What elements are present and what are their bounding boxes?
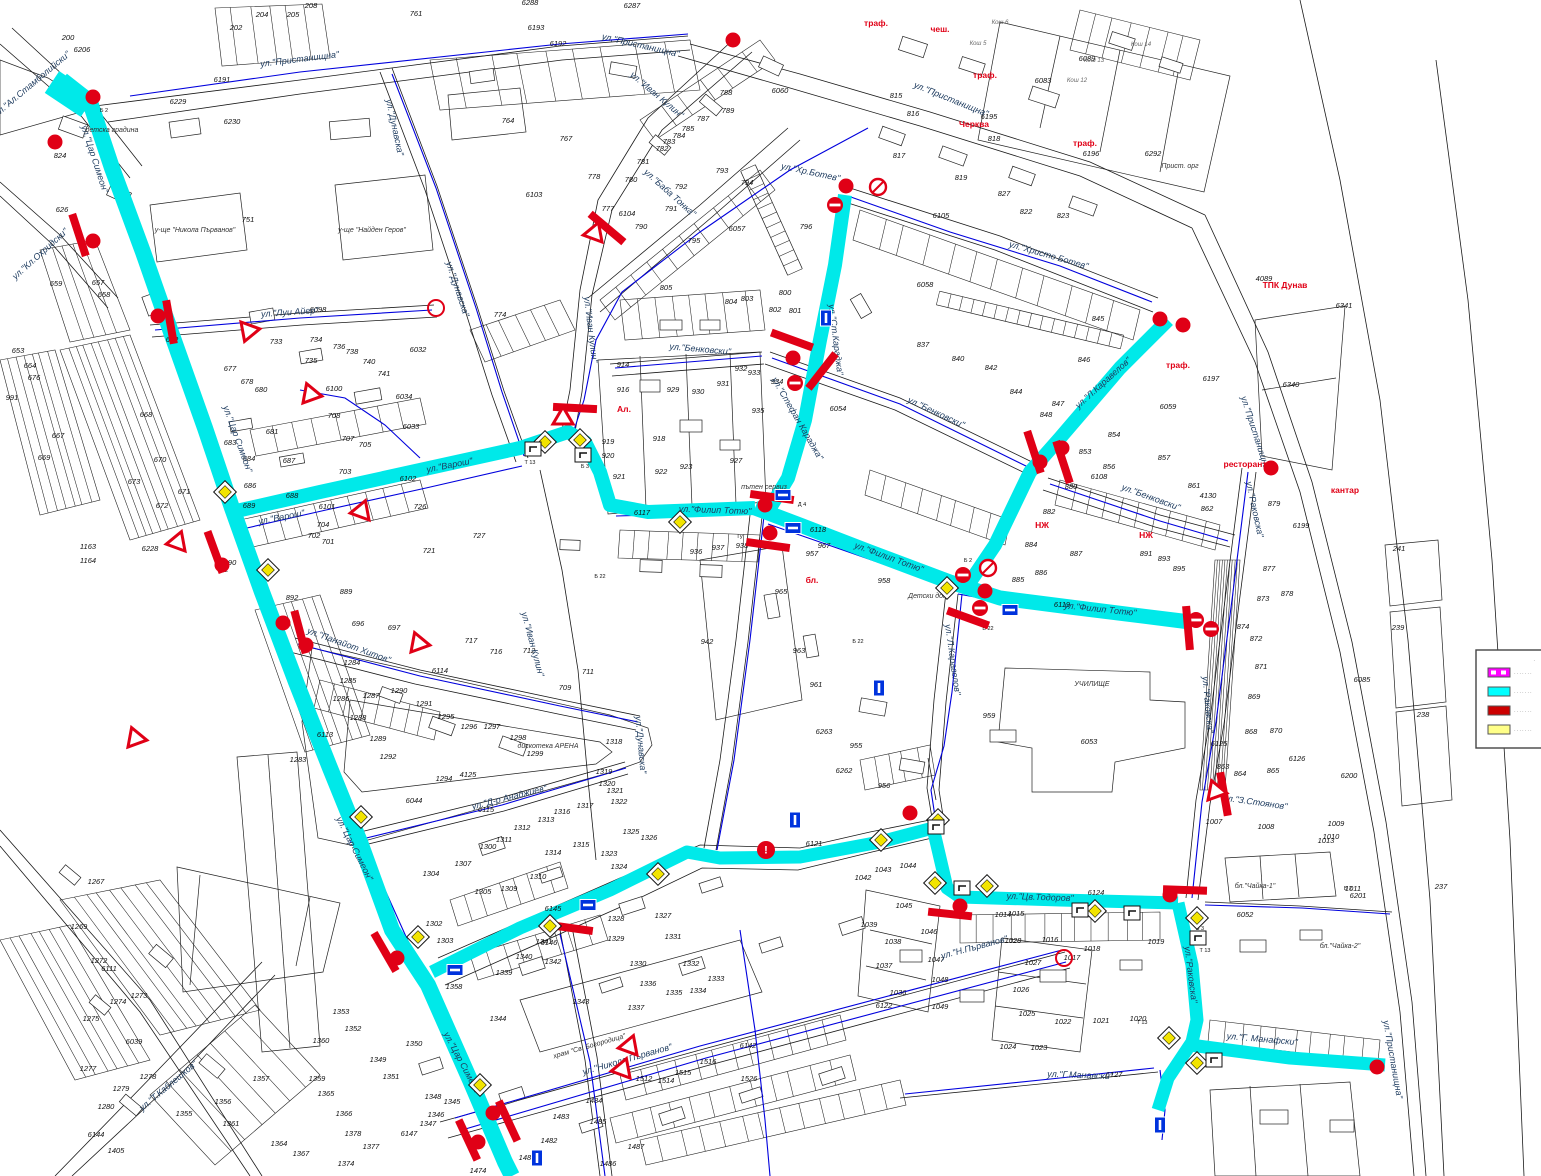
parcel-number: 716: [490, 647, 503, 656]
garage-rung: [766, 221, 781, 228]
poi-label: у-ще "Найден Геров": [337, 226, 406, 234]
parcel-number: 202: [229, 23, 243, 32]
parcel-number: 697: [388, 623, 401, 632]
parcel-number: 241: [1392, 544, 1406, 553]
building: [879, 126, 906, 145]
block-outline: [1295, 854, 1299, 897]
exclamation: !: [764, 845, 768, 857]
parcel-line: [896, 225, 903, 255]
parcel-number: 6032: [410, 345, 428, 354]
parcel-number: 863: [1217, 762, 1230, 771]
parcel-number: 4130: [1200, 491, 1218, 500]
parcel-number: 6108: [1091, 472, 1109, 481]
parcel-number: 6113: [317, 730, 334, 739]
parcel-number: 862: [1201, 504, 1214, 513]
road-casing: [845, 202, 1153, 312]
parcel-number: 914: [617, 360, 630, 369]
red-poi-label: чеш.: [930, 24, 949, 34]
parcel-number: 6117: [634, 508, 651, 517]
road-casing: [678, 56, 1192, 228]
no-entry-bar: [958, 574, 969, 577]
red-marker-icon: [903, 806, 918, 821]
parcel-number: 1364: [271, 1139, 288, 1148]
parcel-number: 774: [494, 310, 507, 319]
parcel-line: [689, 1097, 695, 1122]
street-name: ул."Раковска": [1200, 675, 1215, 734]
parcel-number: 6145: [545, 904, 563, 913]
parcel-line: [733, 1044, 739, 1069]
garage-rung: [779, 250, 794, 257]
sign-plate-icon: [954, 881, 970, 895]
parcel-number: 1026: [1013, 985, 1031, 994]
block-name-label: Кош 6: [992, 20, 1010, 26]
parcel-number: 1311: [496, 835, 512, 844]
street-name: ул."Раковска": [1244, 480, 1266, 539]
parcel-number: 738: [346, 347, 359, 356]
parcel-number: 6192: [550, 39, 568, 48]
parcel-number: 1278: [140, 1072, 158, 1081]
parcel-number: 922: [655, 467, 668, 476]
parcel-number: 884: [1025, 540, 1038, 549]
red-poi-label: траф.: [973, 70, 997, 80]
parcel-line: [1016, 268, 1023, 298]
plate: [1072, 903, 1088, 917]
parcel-number: 1289: [370, 734, 388, 743]
parcel-number: 827: [998, 189, 1011, 198]
parcel-line: [787, 1071, 793, 1096]
parcel-number: 1359: [309, 1074, 327, 1083]
building: [1159, 57, 1183, 73]
parcel-line: [48, 351, 92, 502]
parcel-line: [1065, 286, 1072, 316]
parcel-line: [799, 1103, 805, 1128]
building: [59, 865, 81, 886]
parcel-line: [822, 1020, 828, 1045]
parcel-number: 1351: [383, 1072, 400, 1081]
parcel-line: [699, 1126, 705, 1151]
parcel-number: 703: [339, 467, 352, 476]
parcel-number: 1367: [293, 1149, 311, 1158]
road-casing-layer: [0, 0, 1524, 1176]
parcel-number: 1331: [665, 932, 682, 941]
parcel-number: 740: [363, 357, 376, 366]
parcel-line: [1343, 1036, 1345, 1058]
parcel-number: 919: [602, 437, 615, 446]
parcel-line: [787, 1029, 793, 1054]
parcel-number: 1356: [215, 1097, 233, 1106]
parcel-line: [1037, 276, 1044, 306]
sign-code-label: Б 2: [964, 558, 972, 564]
street-name: ул."Христо Ботев": [1007, 239, 1090, 272]
red-poi-label: Ал.: [617, 404, 631, 414]
road-casing: [1186, 468, 1242, 898]
parcel-line: [923, 235, 930, 265]
parcel-line: [838, 1094, 844, 1119]
garage-rung: [1086, 327, 1089, 341]
parcel-number: 6287: [624, 1, 642, 10]
parcel-block: [640, 1080, 906, 1165]
utility-line: [462, 962, 1066, 1130]
parcel-number: 1485: [590, 1117, 608, 1126]
parcel-number: 1295: [438, 712, 456, 721]
parcel-number: 780: [625, 175, 638, 184]
parcel-number: 761: [410, 9, 423, 18]
utility-line: [1192, 472, 1248, 898]
street-name: ул."Иван Кулин": [519, 610, 546, 678]
parcel-number: 687: [283, 456, 296, 465]
parcel-number: 785: [682, 124, 695, 133]
glyph: [788, 527, 798, 530]
parcel-number: 1008: [1258, 822, 1276, 831]
parcel-number: 6052: [1237, 910, 1255, 919]
parcel-number: 927: [730, 456, 743, 465]
parcel-number: 1334: [690, 986, 707, 995]
sign-code-label: Б 22: [852, 639, 863, 645]
parcel-line: [486, 950, 494, 975]
parcel-number: 877: [1263, 564, 1276, 573]
parcel-number: 6104: [619, 209, 636, 218]
parcel-line: [241, 1017, 306, 1087]
parcel-number: 1043: [875, 865, 893, 874]
parcel-number: 935: [752, 406, 765, 415]
parcel-number: 734: [310, 335, 323, 344]
parcel-number: 1312: [514, 823, 532, 832]
parcel-line: [270, 6, 278, 62]
info-sign-icon: [447, 965, 463, 976]
red-marker-icon: [726, 33, 741, 48]
street-name: ул."Раковска": [1182, 945, 1199, 1004]
parcel-number: 1277: [80, 1064, 98, 1073]
building: [149, 944, 174, 967]
parcel-number: 1352: [345, 1024, 363, 1033]
parcel-number: 1284: [344, 658, 361, 667]
road-casing: [850, 188, 1158, 298]
parcel-number: 6105: [933, 211, 951, 220]
red-bar-marker-icon: [770, 329, 814, 352]
label-layer: 6206619161926193200202204205208761628862…: [0, 0, 1448, 1175]
sign-code-label: Д 4: [798, 502, 806, 508]
parcel-number: 931: [717, 379, 730, 388]
parcel-number: 1342: [545, 957, 563, 966]
give-way-sign-icon: [405, 629, 430, 652]
parcel-number: 805: [660, 283, 673, 292]
red-marker-icon: [48, 135, 63, 150]
parcel-number: 6114: [432, 666, 448, 675]
parcel-line: [515, 315, 530, 346]
glyph: [778, 494, 788, 497]
sign-code-label: Б 22: [594, 574, 605, 580]
parcel-line: [517, 53, 527, 103]
parcel-number: 764: [502, 116, 515, 125]
parcel-number: 792: [675, 182, 688, 191]
block-outline: [730, 353, 736, 504]
parcel-line: [859, 1089, 865, 1114]
parcel-number: 6196: [1083, 149, 1101, 158]
parcel-line: [486, 325, 501, 357]
parcel-line: [647, 262, 662, 282]
building: [758, 56, 783, 76]
parcel-number: 1349: [370, 1055, 388, 1064]
parcel-number: 1021: [1093, 1016, 1110, 1025]
garage-rung: [971, 299, 974, 313]
parcel-number: 789: [722, 106, 735, 115]
red-marker-icon: [1153, 312, 1168, 327]
parcel-number: 801: [789, 306, 802, 315]
street-name: ул."Дунавска": [444, 259, 472, 319]
parcel-number: 6057: [729, 224, 747, 233]
parcel-number: 1474: [470, 1166, 487, 1175]
parcel-number: 803: [741, 294, 754, 303]
garage-rung: [1028, 313, 1031, 327]
garage-rung: [741, 165, 756, 172]
block-outline: [296, 897, 310, 966]
parcel-number: 6053: [1081, 737, 1099, 746]
parcel-block: [0, 925, 150, 1080]
parcel-number: 1337: [628, 1003, 646, 1012]
parcel-number: 237: [1434, 882, 1448, 891]
parcel-number: 238: [1416, 710, 1430, 719]
legend-item-label: ·······: [1514, 728, 1533, 734]
parcel-line: [304, 5, 312, 60]
parcel-number: 956: [878, 781, 891, 790]
building: [803, 634, 819, 658]
building: [89, 995, 111, 1016]
parcel-number: 1038: [885, 937, 903, 946]
building: [1120, 960, 1142, 970]
parcel-number: 1339: [496, 968, 514, 977]
parcel-line: [1107, 301, 1114, 331]
parcel-line: [758, 1113, 764, 1138]
parcel-number: 886: [1035, 568, 1048, 577]
sign-plate-icon: [525, 442, 541, 456]
parcel-number: 1348: [425, 1092, 443, 1101]
parcel-number: 6340: [1283, 380, 1301, 389]
building: [680, 420, 702, 432]
parcel-number: 878: [1281, 589, 1294, 598]
parcel-number: 767: [560, 134, 573, 143]
parcel-number: 6054: [830, 404, 847, 413]
parcel-line: [657, 1136, 663, 1161]
parcel-number: 735: [305, 356, 318, 365]
parcel-number: 6124: [1088, 888, 1105, 897]
parcel-number: 942: [701, 637, 714, 646]
parcel-number: 1273: [131, 991, 149, 1000]
no-entry-bar: [1191, 619, 1202, 622]
red-marker-icon: [86, 90, 101, 105]
building: [354, 388, 382, 404]
parcel-number: 818: [988, 134, 1001, 143]
building: [739, 1087, 763, 1103]
parcel-number: 787: [697, 114, 710, 123]
parcel-number: 815: [890, 91, 903, 100]
parcel-line: [19, 936, 95, 1075]
parcel-number: 1275: [83, 1014, 101, 1023]
parcel-number: 788: [720, 88, 733, 97]
info-sign-icon: [532, 1150, 543, 1166]
parcel-number: 670: [154, 455, 167, 464]
parcel-number: 707: [342, 434, 355, 443]
poi-label: бл."Чайка-1": [1235, 882, 1276, 890]
parcel-number: 963: [793, 646, 806, 655]
parcel-number: 1319: [596, 767, 614, 776]
building: [469, 68, 494, 83]
parcel-number: 889: [340, 587, 353, 596]
road-casing: [1192, 228, 1414, 1176]
building: [659, 1107, 686, 1126]
parcel-number: 1010: [1323, 832, 1341, 841]
parcel-line: [546, 51, 556, 101]
parcel-line: [881, 1084, 887, 1109]
block-name-label: Кош 13: [1084, 58, 1105, 64]
parcel-number: 958: [878, 576, 891, 585]
parcel-number: 918: [653, 434, 666, 443]
parcel-number: 689: [243, 501, 256, 510]
ring-marker-icon: [428, 300, 444, 316]
parcel-number: 751: [242, 215, 255, 224]
parcel-line: [650, 1107, 656, 1132]
red-marker-icon: [786, 351, 801, 366]
sign-code-label: Т 13: [1136, 1020, 1147, 1026]
parcel-number: 1343: [573, 997, 591, 1006]
parcel-line: [819, 1099, 825, 1124]
parcel-line: [780, 1108, 786, 1133]
parcel-number: 721: [423, 546, 436, 555]
parcel-number: 6058: [917, 280, 935, 289]
parcel-line: [39, 932, 117, 1069]
parcel-number: 6193: [528, 23, 546, 32]
parcel-number: 967: [818, 541, 831, 550]
parcel-number: 1336: [640, 979, 658, 988]
parcel-number: 865: [1267, 766, 1280, 775]
plate: [928, 820, 944, 834]
parcel-number: 657: [92, 278, 105, 287]
building: [898, 36, 927, 57]
parcel-number: 936: [690, 547, 703, 556]
parcel-number: 957: [806, 549, 819, 558]
parcel-number: 959: [983, 711, 996, 720]
sign-code-label: Гу: [737, 534, 743, 540]
warning-sign-icon: !: [757, 841, 775, 859]
building: [1029, 86, 1060, 108]
legend: ·····························: [1476, 650, 1541, 748]
parcel-number: 837: [917, 340, 930, 349]
parcel-number: 848: [1040, 410, 1053, 419]
red-poi-label: НЖ: [1139, 530, 1153, 540]
parcel-number: 857: [1158, 453, 1171, 462]
street-name: ул."Л.Каравелов": [943, 623, 963, 697]
give-way-sign-icon: [297, 380, 322, 403]
parcel-number: 1291: [416, 699, 433, 708]
garage-rung: [1040, 316, 1043, 330]
legend-swatch: [1488, 706, 1510, 715]
garage-rung: [762, 212, 777, 219]
info-sign-icon: [874, 680, 885, 696]
parcel-number: 804: [725, 297, 738, 306]
building: [759, 937, 783, 953]
garage-rung: [758, 203, 773, 210]
parcel-number: 6144: [88, 1130, 105, 1139]
glyph: [878, 683, 881, 693]
parcel-number: 817: [893, 151, 906, 160]
parcel-number: 204: [255, 10, 269, 19]
garage-rung: [1109, 332, 1112, 346]
parcel-number: 1046: [921, 927, 939, 936]
parcel-line: [1309, 1032, 1311, 1054]
parcel-number: 1377: [363, 1142, 381, 1151]
parcel-number: 1358: [446, 982, 464, 991]
utility-line: [717, 516, 764, 850]
parcel-number: 6146: [541, 938, 559, 947]
parcel-line: [986, 513, 991, 538]
parcel-line: [633, 531, 635, 559]
parcel-number: 1360: [313, 1036, 331, 1045]
block-outline: [335, 175, 433, 260]
parcel-number: 6103: [526, 190, 544, 199]
parcel-number: 681: [266, 427, 279, 436]
utility-line: [1205, 905, 1390, 914]
parcel-number: 6059: [1160, 402, 1178, 411]
parcel-number: 6292: [1145, 149, 1163, 158]
parcel-number: 671: [178, 487, 191, 496]
parcel-number: 1321: [607, 786, 624, 795]
glyph: [450, 969, 460, 972]
block-outline: [1160, 62, 1180, 172]
parcel-number: 965: [775, 587, 788, 596]
no-entry-sign-icon: [972, 600, 988, 616]
traffic-symbol-layer: !: [48, 33, 1385, 1167]
building: [199, 1054, 225, 1079]
parcel-number: 6288: [522, 0, 540, 7]
parcel-line: [951, 501, 956, 526]
block-outline: [448, 88, 526, 140]
red-poi-label: ресторант: [1224, 459, 1267, 469]
parcel-number: 6034: [396, 392, 413, 401]
street-name: ул."Пристанищна": [259, 49, 341, 69]
parcel-number: 6111: [101, 964, 117, 973]
parcel-number: 887: [1070, 549, 1083, 558]
parcel-number: 1514: [658, 1076, 675, 1085]
parcel-number: 6228: [142, 544, 160, 553]
parcel-number: 892: [286, 593, 299, 602]
parcel-number: 659: [50, 279, 63, 288]
parcel-line: [918, 489, 923, 514]
parcel-block: [0, 350, 100, 515]
parcel-line: [464, 895, 472, 921]
stripe: [1501, 671, 1506, 675]
parcel-number: 6126: [1289, 754, 1307, 763]
street-name: ул."З.Стоянов": [1222, 792, 1289, 811]
road-casing: [716, 517, 762, 850]
parcel-number: 791: [665, 204, 678, 213]
parcel-line: [730, 1087, 736, 1112]
legend-note: ·: [1533, 658, 1536, 664]
glyph: [583, 904, 593, 907]
parcel-line: [881, 476, 886, 501]
parcel-number: 933: [748, 368, 761, 377]
building: [1009, 166, 1036, 185]
plate: [575, 448, 591, 462]
parcel-line: [810, 1066, 816, 1091]
parcel-number: 1297: [484, 722, 502, 731]
sign-code-label: Б 2: [100, 108, 108, 114]
building: [700, 320, 720, 330]
utility-line: [130, 34, 688, 96]
parcel-number: 879: [1268, 499, 1281, 508]
parcel-block: [610, 1055, 856, 1143]
no-stopping-sign-icon: [870, 179, 886, 195]
parcel-number: 6060: [772, 86, 790, 95]
parcel-line: [10, 938, 86, 1077]
